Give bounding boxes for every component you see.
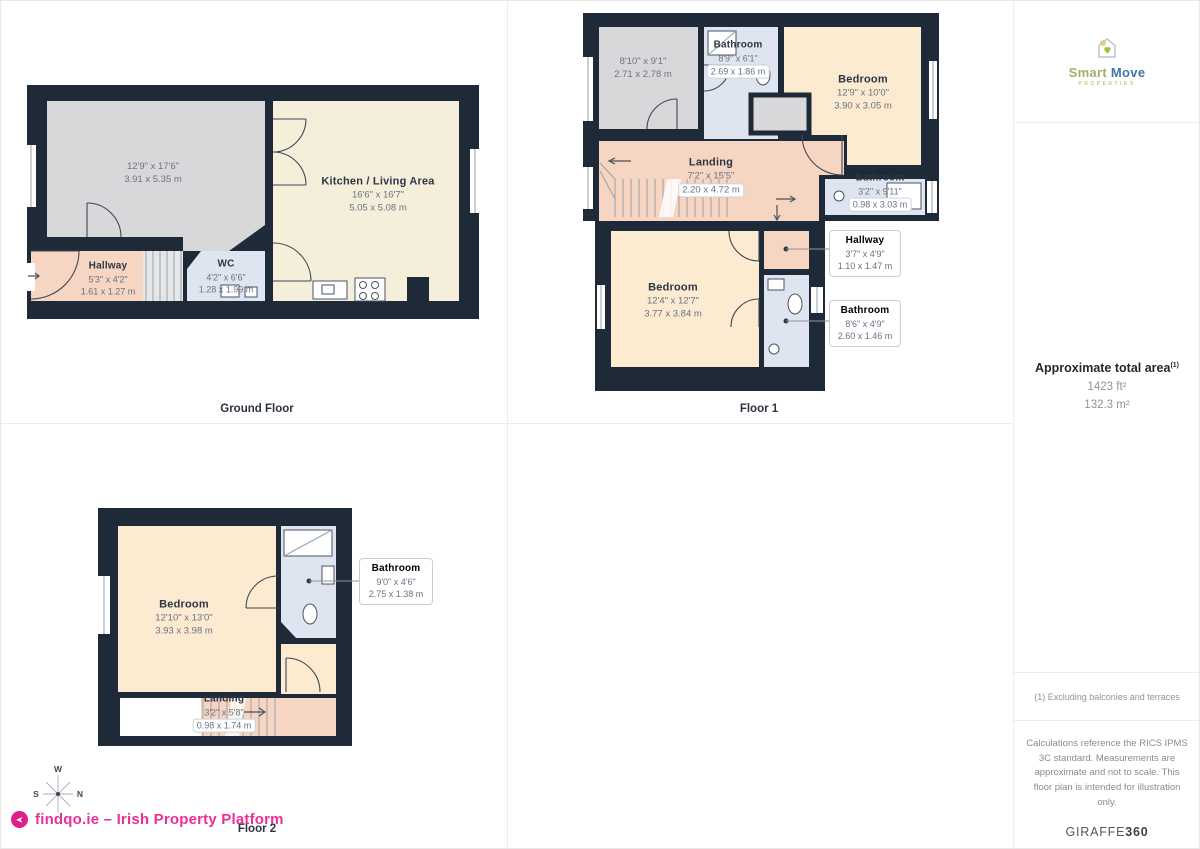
total-area-metric: 132.3 m² [1014, 399, 1200, 411]
logo-tagline: PROPERTIES [1069, 81, 1146, 87]
closet-shape [751, 95, 809, 133]
floor1-plan: 8'10" x 9'1" 2.71 x 2.78 m Bathroom 8'9"… [581, 13, 941, 397]
findqo-logo-icon: ➤ [11, 811, 28, 828]
area-footnote: (1) Excluding balconies and terraces [1014, 673, 1200, 721]
bathroom-callout: Bathroom 8'6" x 4'9" 2.60 x 1.46 m [829, 300, 901, 347]
vertical-divider [507, 1, 508, 849]
hallway-callout: Hallway 3'7" x 4'9" 1.10 x 1.47 m [829, 230, 901, 277]
room-bedroom-f2-shape [118, 526, 276, 692]
floor2-svg [96, 506, 436, 756]
findqo-branding: ➤ findqo.ie – Irish Property Platform [11, 807, 284, 831]
floor2-plan: Bedroom 12'10" x 13'0" 3.93 x 3.98 m Lan… [96, 506, 436, 756]
room-landing-f2-shape [201, 698, 336, 736]
room-hallway-shape [31, 251, 143, 301]
floor1-label: Floor 1 [740, 403, 778, 415]
findqo-text: findqo.ie – Irish Property Platform [35, 811, 284, 828]
agency-logo: Smart Move PROPERTIES [1014, 1, 1200, 123]
giraffe360-logo: GIRAFFE360 [1025, 823, 1189, 842]
floorplan-page: 12'9" x 17'6" 3.91 x 5.35 m Kitchen / Li… [0, 0, 1200, 849]
total-area-imperial: 1423 ft² [1014, 381, 1200, 393]
room-kitchen-living-shape [273, 101, 459, 301]
total-area-panel: Approximate total area(1) 1423 ft² 132.3… [1014, 123, 1200, 673]
room-living-shape [47, 101, 265, 251]
logo-word-smart: Smart [1069, 65, 1107, 80]
wc-fixtures-icon [221, 285, 257, 297]
compass-north: N [77, 789, 83, 799]
ground-floor-label: Ground Floor [220, 403, 293, 415]
ground-floor-svg [25, 85, 481, 321]
room-f1-shape [599, 27, 698, 129]
ground-floor-plan: 12'9" x 17'6" 3.91 x 5.35 m Kitchen / Li… [25, 85, 481, 321]
logo-word-move: Move [1111, 65, 1145, 80]
total-area-title: Approximate total area(1) [1014, 361, 1200, 375]
stairs-area [143, 251, 183, 301]
window-icon [98, 576, 110, 634]
bathroom-f2-callout: Bathroom 9'0" x 4'6" 2.75 x 1.38 m [359, 558, 433, 605]
disclaimer-panel: Calculations reference the RICS IPMS 3C … [1014, 721, 1200, 842]
sidebar: Smart Move PROPERTIES Approximate total … [1013, 1, 1200, 849]
compass-west: W [54, 764, 63, 774]
smartmove-house-icon [1095, 36, 1119, 60]
compass-south: S [33, 789, 39, 799]
horizontal-divider [1, 423, 1013, 424]
room-landing-shape [599, 141, 784, 221]
disclaimer-text: Calculations reference the RICS IPMS 3C … [1025, 737, 1189, 811]
